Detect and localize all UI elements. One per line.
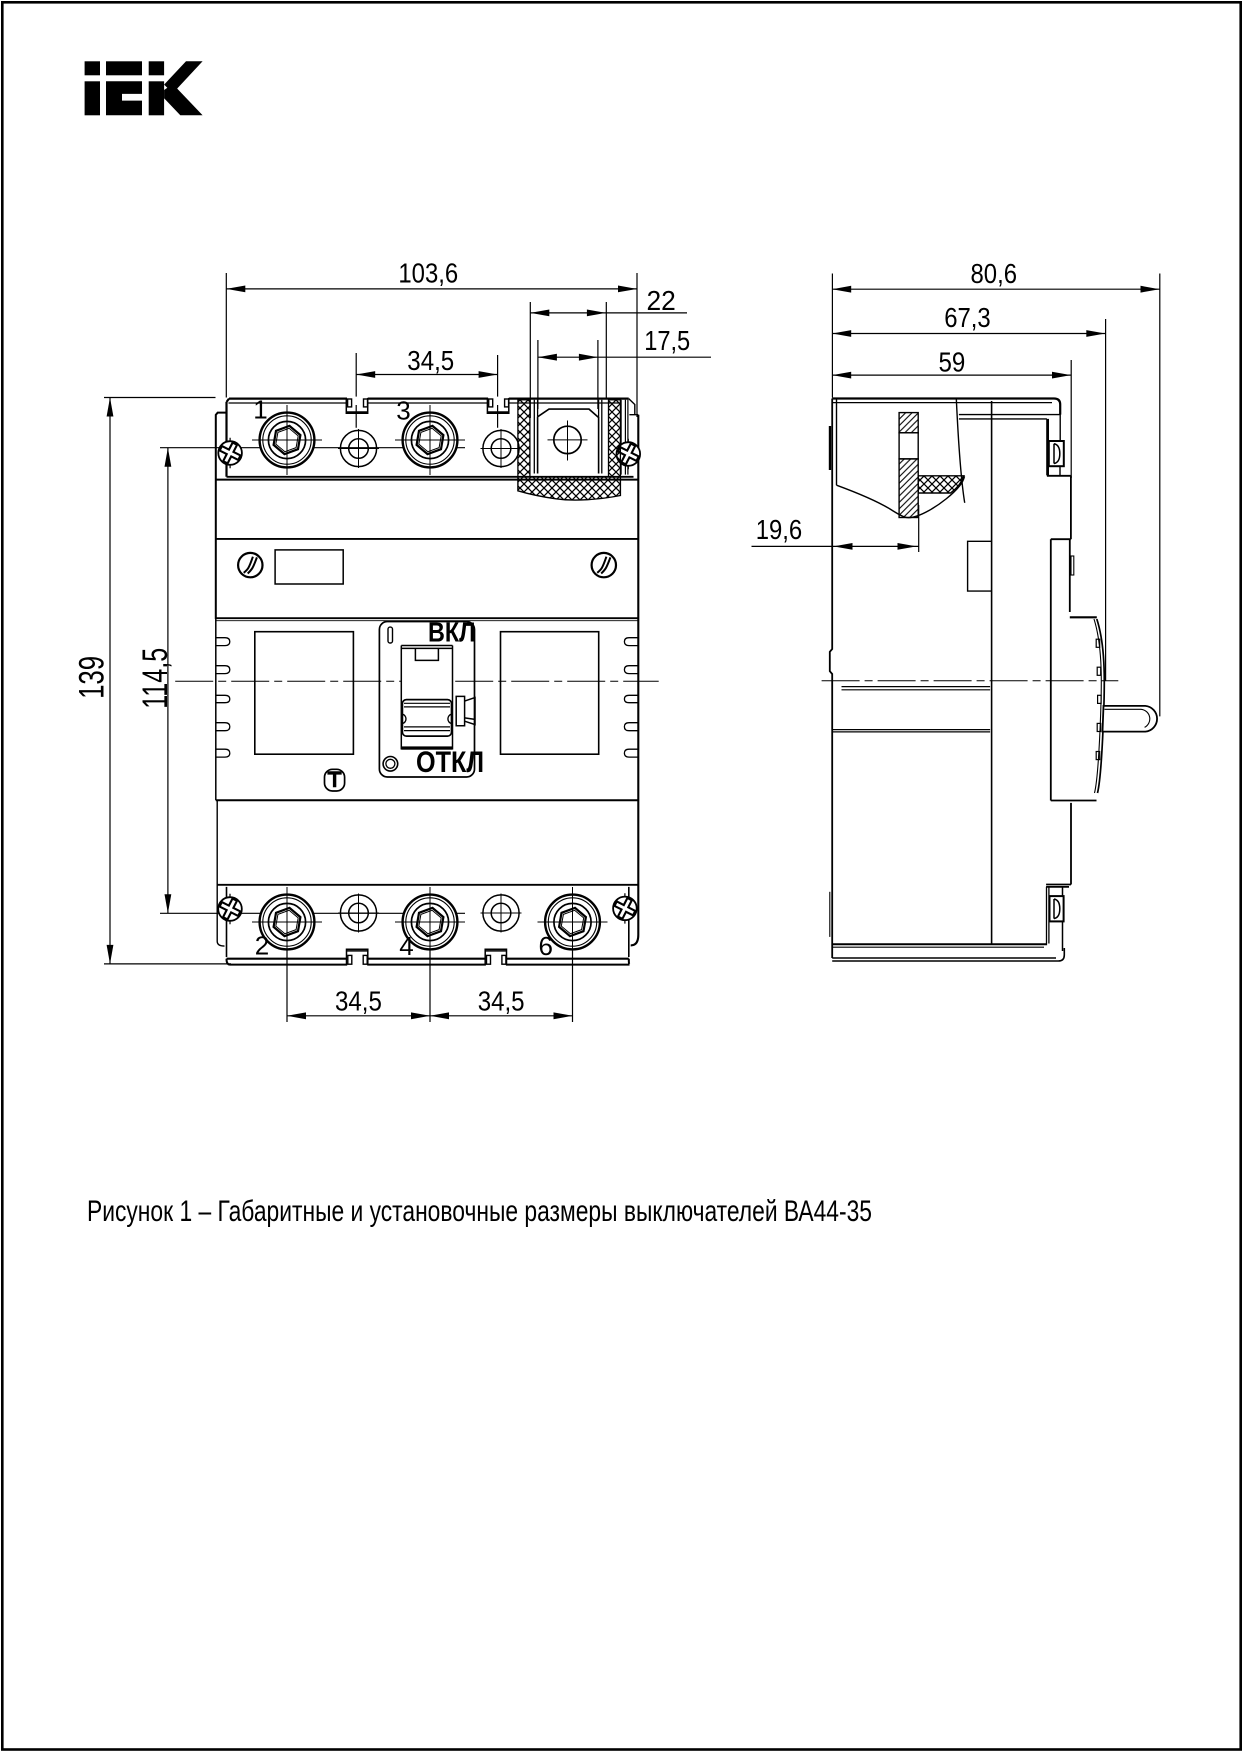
svg-text:34,5: 34,5 <box>478 986 525 1017</box>
svg-text:2: 2 <box>255 931 269 961</box>
svg-text:67,3: 67,3 <box>944 302 991 333</box>
svg-text:114,5: 114,5 <box>136 648 175 709</box>
svg-text:19,6: 19,6 <box>756 514 803 545</box>
svg-text:6: 6 <box>538 931 552 961</box>
svg-text:3: 3 <box>396 396 410 426</box>
svg-text:34,5: 34,5 <box>407 345 454 376</box>
svg-text:ОТКЛ: ОТКЛ <box>416 746 484 779</box>
svg-text:103,6: 103,6 <box>398 258 458 289</box>
svg-text:80,6: 80,6 <box>971 258 1018 289</box>
svg-text:17,5: 17,5 <box>644 325 690 356</box>
svg-text:22: 22 <box>647 285 676 316</box>
svg-text:59: 59 <box>939 346 966 377</box>
svg-text:1: 1 <box>253 395 267 425</box>
svg-text:34,5: 34,5 <box>335 986 382 1017</box>
svg-text:139: 139 <box>72 656 111 699</box>
svg-text:4: 4 <box>399 931 413 961</box>
svg-text:Рисунок 1 – Габаритные и устан: Рисунок 1 – Габаритные и установочные ра… <box>87 1195 872 1228</box>
svg-text:ВКЛ: ВКЛ <box>428 617 476 648</box>
